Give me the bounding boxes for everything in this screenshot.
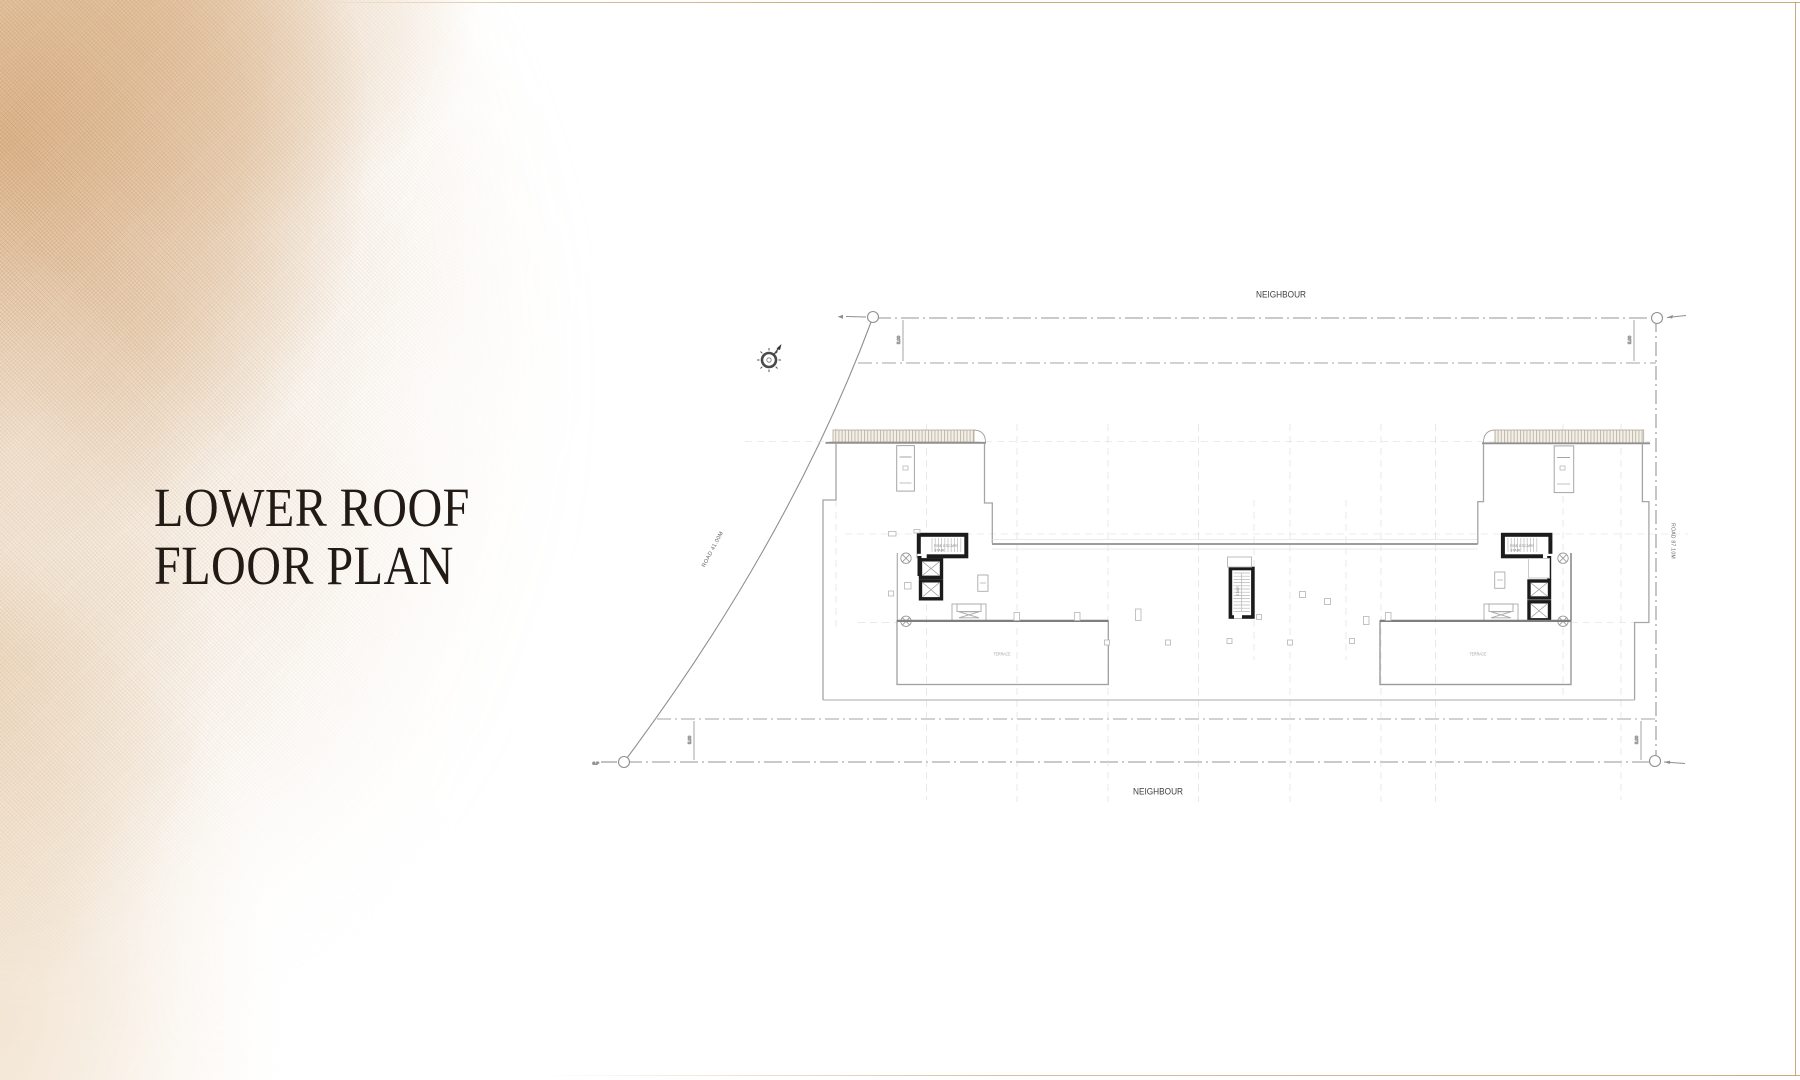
svg-text:FIRE ESCAPE: FIRE ESCAPE (934, 544, 958, 548)
svg-text:5.00: 5.00 (1634, 735, 1639, 744)
svg-text:5.00: 5.00 (1627, 335, 1632, 344)
svg-text:NEIGHBOUR: NEIGHBOUR (1256, 289, 1306, 299)
svg-text:FIRE ESCAPE: FIRE ESCAPE (1510, 544, 1534, 548)
svg-text:S.P: S.P (593, 761, 600, 766)
svg-text:TERRACE: TERRACE (994, 651, 1011, 656)
svg-text:TERRACE: TERRACE (1470, 651, 1487, 656)
svg-text:NEIGHBOUR: NEIGHBOUR (1133, 786, 1183, 796)
svg-text:5.00: 5.00 (687, 735, 692, 744)
svg-text:STAIR: STAIR (1236, 586, 1240, 596)
svg-text:STAIR: STAIR (1510, 549, 1521, 553)
svg-text:STAIR: STAIR (934, 549, 945, 553)
svg-text:5.00: 5.00 (896, 335, 901, 344)
svg-text:ROAD 41.00M: ROAD 41.00M (701, 531, 725, 569)
svg-text:ROAD 87.10M: ROAD 87.10M (1670, 523, 1676, 559)
